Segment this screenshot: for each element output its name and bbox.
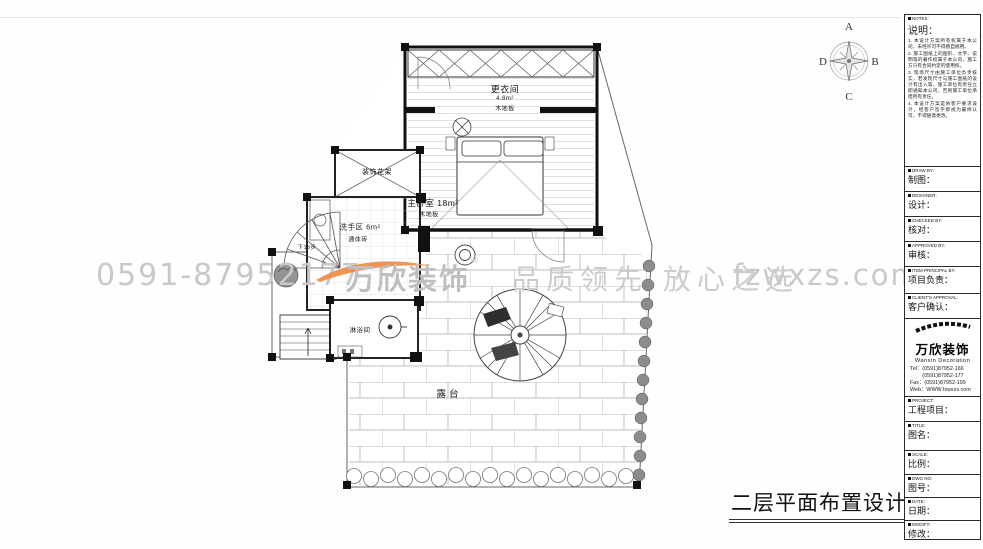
notes-title: 说明： <box>908 22 977 37</box>
notes-section: NOTES: 说明： 1. 本设计方案所有权属于本公司，未经许可不得擅自挪用。 … <box>905 15 980 167</box>
field-draw-by: DRAW BY: 制图： <box>905 167 980 192</box>
field-date: DATE: 日期： <box>905 498 980 521</box>
section-bullet-icon <box>908 194 911 197</box>
section-bullet-icon <box>908 453 911 456</box>
section-bullet-icon <box>908 169 911 172</box>
section-bullet-icon <box>908 424 911 427</box>
round-fixture <box>455 245 475 265</box>
section-bullet-icon <box>908 477 911 480</box>
floor-plan: 更衣间 4.8m² 木地板 主卧室 18m² 木地板 装饰花架 洗手区 6m² … <box>250 30 670 495</box>
company-logo-icon <box>913 321 973 333</box>
section-bullet-icon <box>908 399 911 402</box>
label-wash-finish: 通体砖 <box>348 235 368 244</box>
compass-d: D <box>819 56 827 68</box>
label-dressing-area: 4.8m² <box>496 96 514 102</box>
label-master-finish: 木地板 <box>419 210 439 219</box>
section-bullet-icon <box>908 219 911 222</box>
field-item-principal: ITEM PRINCIPAL BY: 项目负责： <box>905 267 980 294</box>
company-tel: Tel：(0591)87952-166 <box>910 366 977 373</box>
label-master-bedroom: 主卧室 18m² <box>407 197 458 209</box>
label-stair-note: 下15步 <box>297 243 316 251</box>
compass-icon: A B C D <box>818 16 880 104</box>
field-checked-by: CHECKED BY: 核对： <box>905 217 980 242</box>
label-flower-rack: 装饰花架 <box>362 167 392 177</box>
company-fax: Fax：(0591)87952-199 <box>910 380 977 387</box>
ceiling-fixture <box>453 118 471 136</box>
field-dwg-no: DWG NO: 图号： <box>905 475 980 498</box>
drawing-sheet: 更衣间 4.8m² 木地板 主卧室 18m² 木地板 装饰花架 洗手区 6m² … <box>0 0 983 549</box>
company-name-en: Wanxin Decoration <box>908 358 977 364</box>
company-web: Web：WWW.fzwxzs.com <box>910 387 977 394</box>
title-block: NOTES: 说明： 1. 本设计方案所有权属于本公司，未经许可不得擅自挪用。 … <box>904 14 981 540</box>
section-bullet-icon <box>908 244 911 247</box>
shrub <box>274 263 298 287</box>
field-client-approval: CLIENT'S APPROVAL: 客户确认： <box>905 294 980 319</box>
field-designer: DESIGNER: 设计： <box>905 192 980 217</box>
field-modify: MODIFY: 修改： <box>905 521 980 544</box>
note-item: 2. 施工图纸上的图形、文字、说明等的著作权属于本公司，施工方只有合同约定的使用… <box>908 51 977 69</box>
notes-header: NOTES: <box>908 16 977 21</box>
note-item: 1. 本设计方案所有权属于本公司，未经许可不得擅自挪用。 <box>908 38 977 50</box>
field-title: TITLE: 图名： <box>905 422 980 451</box>
label-terrace: 露台 <box>436 386 461 400</box>
section-bullet-icon <box>908 523 911 526</box>
section-bullet-icon <box>908 500 911 503</box>
umbrella-table <box>474 289 566 381</box>
compass-c: C <box>845 91 852 103</box>
sheet-title: 二层平面布置设计图 <box>729 487 931 523</box>
label-dressing-room: 更衣间 <box>491 83 520 96</box>
nightstand-left <box>446 137 455 150</box>
note-item: 3. 现场尺寸由施工单位负责核实，若发现尺寸与施工图纸的设计有出入等，施工单位有… <box>908 70 977 100</box>
floor-plan-svg <box>250 30 670 495</box>
label-shower-room: 淋浴间 <box>350 324 371 334</box>
wardrobe <box>408 50 594 77</box>
company-tel2: (0591)87952-177 <box>910 373 977 380</box>
field-project: PROJECT: 工程项目： <box>905 397 980 422</box>
section-bullet-icon <box>908 269 911 272</box>
field-approved-by: APPROVED BY: 审核： <box>905 242 980 267</box>
nightstand-right <box>545 137 554 150</box>
watermark-website: fzwxzs.com <box>733 258 921 292</box>
field-scale: SCALE: 比例： <box>905 451 980 475</box>
stair-flight <box>280 315 336 359</box>
label-wash-area: 洗手区 6m² <box>340 222 381 233</box>
section-bullet-icon <box>908 17 911 20</box>
label-dressing-finish: 木地板 <box>495 104 515 113</box>
compass-b: B <box>871 56 878 68</box>
compass-a: A <box>845 21 853 33</box>
company-name-cn: 万欣装饰 <box>908 339 977 358</box>
note-item: 4. 本设计方案是依客户要求设计，经客户签字即视为最终认可，不得随意更改。 <box>908 101 977 119</box>
page-top-rule <box>0 17 900 18</box>
section-bullet-icon <box>908 296 911 299</box>
company-block: 万欣装饰 Wanxin Decoration Tel：(0591)87952-1… <box>905 319 980 397</box>
